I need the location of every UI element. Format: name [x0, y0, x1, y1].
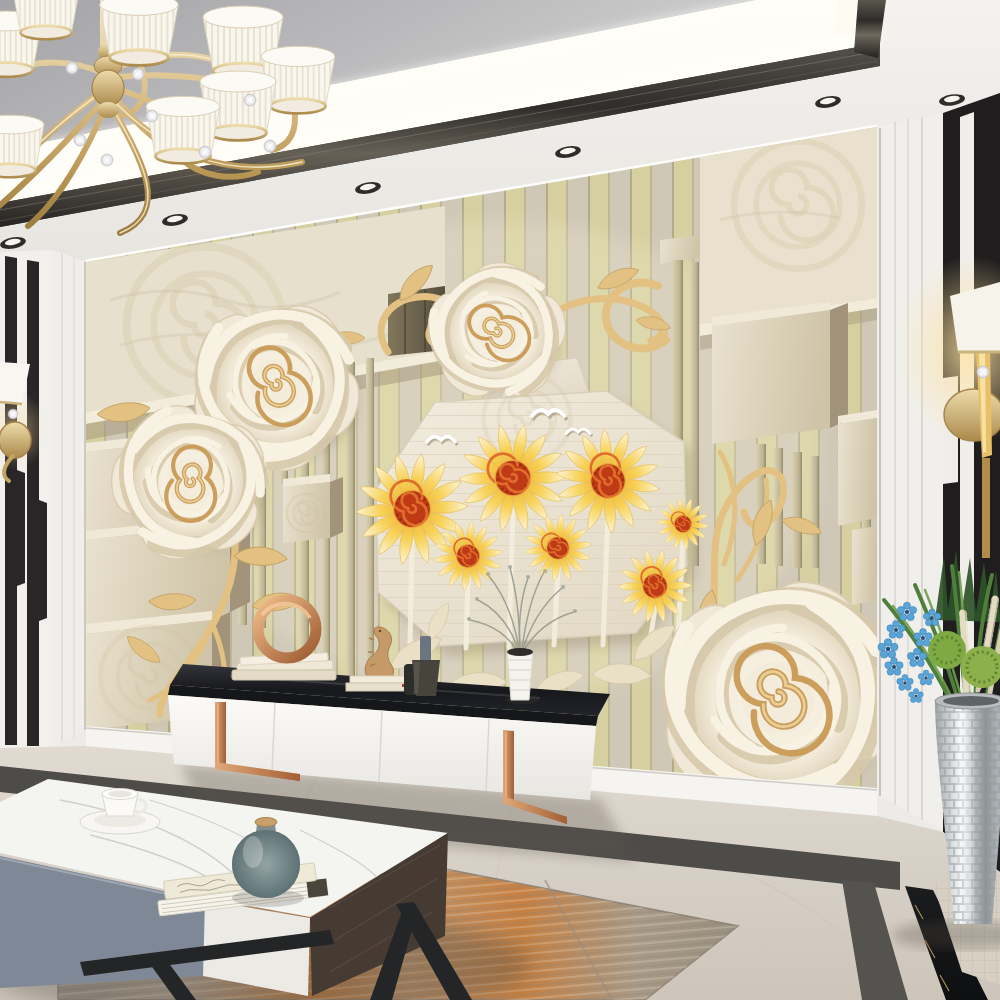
left-wall — [0, 250, 86, 748]
living-room-photo — [0, 0, 1000, 1000]
lamp-shade — [100, 0, 178, 65]
right-frame-molding — [877, 113, 943, 830]
lamp-shade — [12, 0, 80, 39]
left-frame-molding — [52, 250, 86, 748]
